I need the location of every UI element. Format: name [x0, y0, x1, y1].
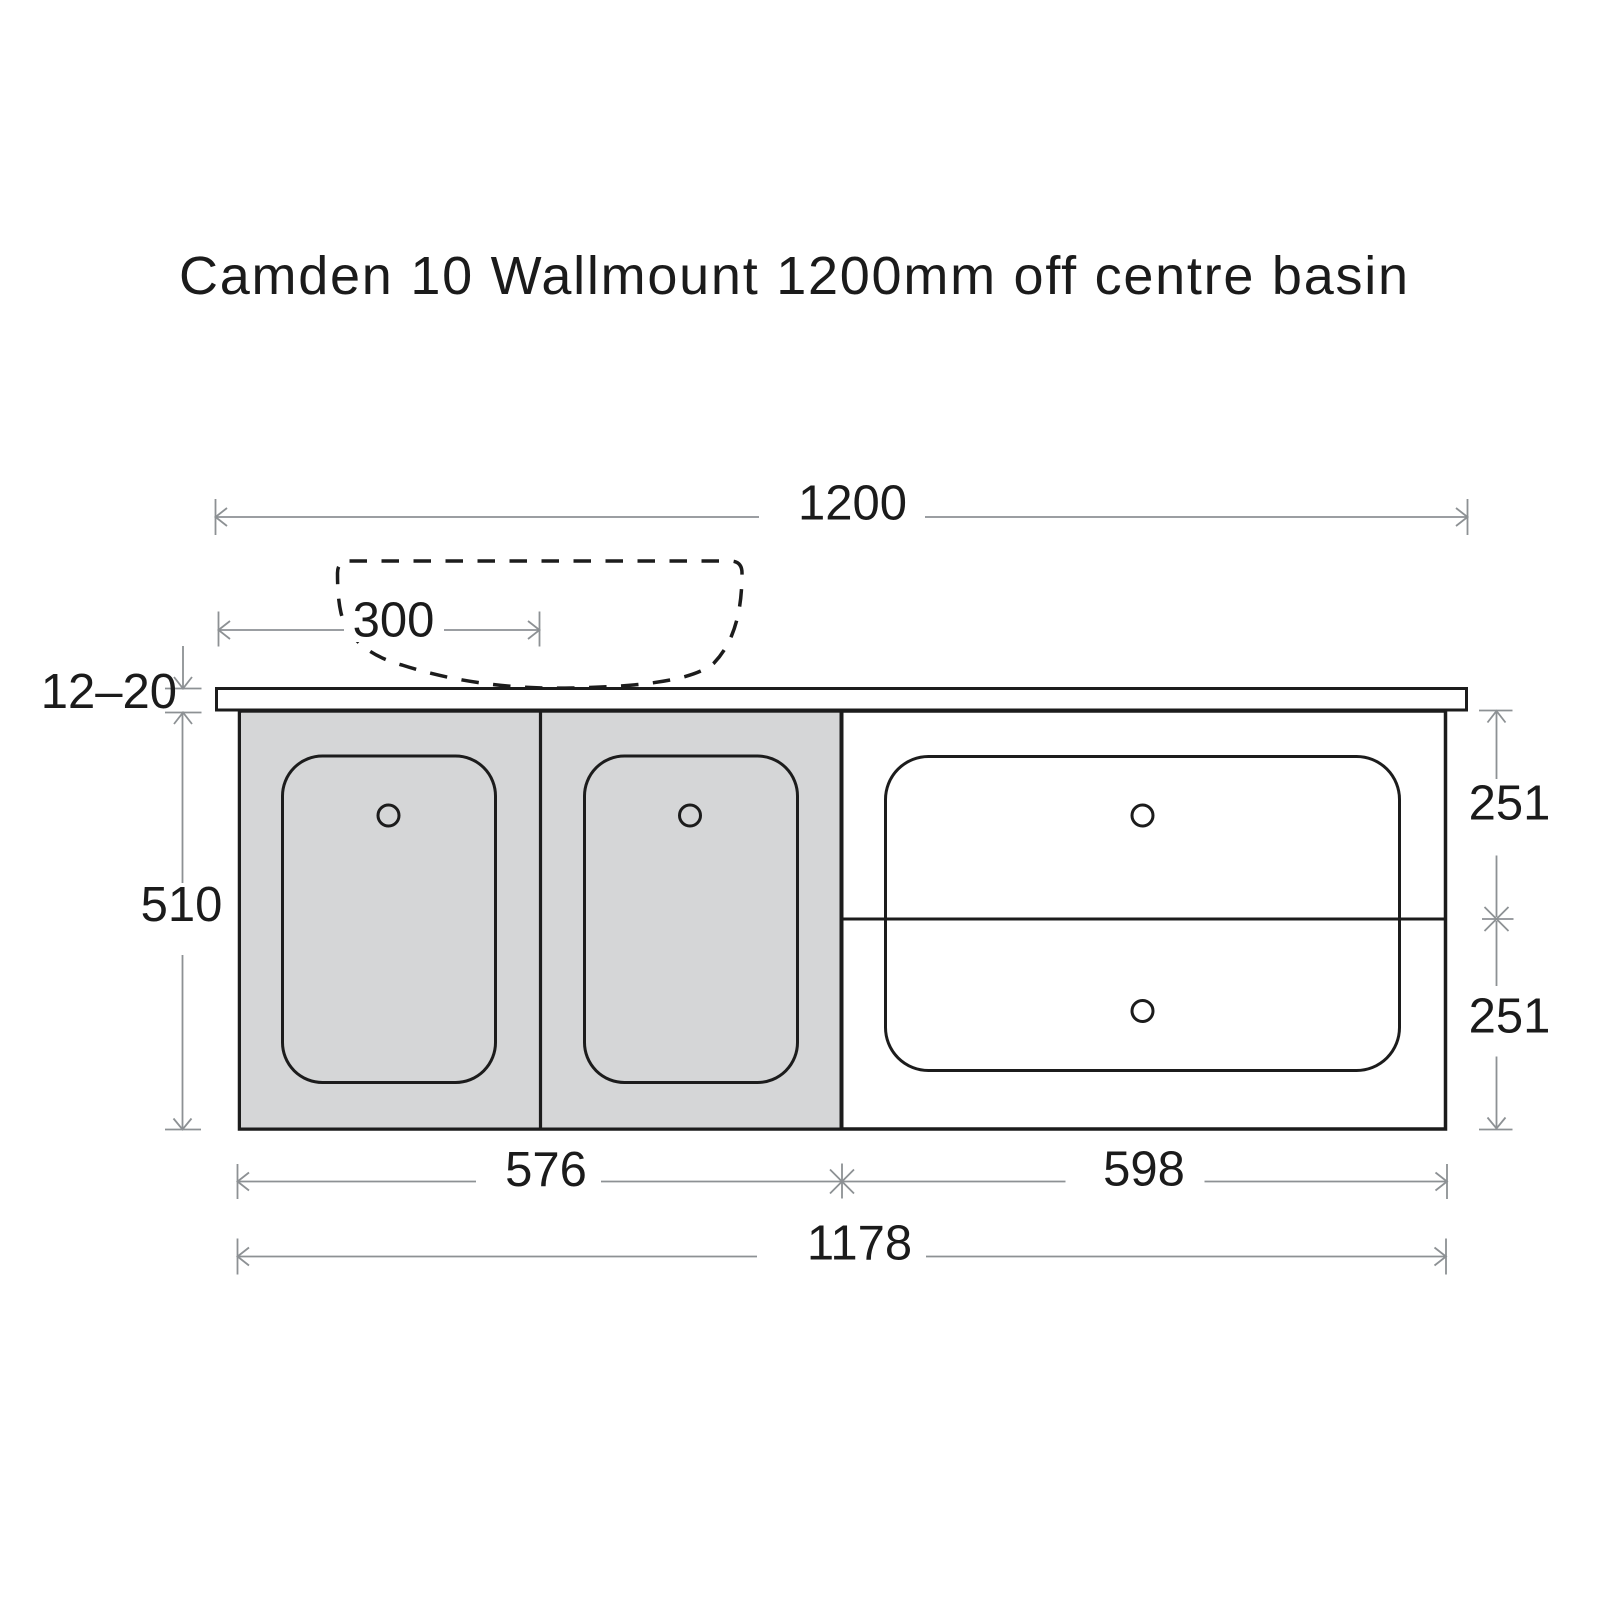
svg-text:598: 598 [1103, 1143, 1185, 1197]
svg-text:300: 300 [353, 594, 435, 648]
svg-text:1200: 1200 [798, 477, 907, 531]
svg-text:12–20: 12–20 [41, 665, 177, 719]
svg-text:251: 251 [1469, 990, 1551, 1044]
svg-text:Camden 10 Wallmount 1200mm off: Camden 10 Wallmount 1200mm off centre ba… [179, 246, 1408, 306]
svg-text:576: 576 [505, 1143, 587, 1197]
svg-text:1178: 1178 [807, 1217, 912, 1271]
svg-text:510: 510 [141, 878, 223, 932]
svg-text:251: 251 [1469, 777, 1551, 831]
